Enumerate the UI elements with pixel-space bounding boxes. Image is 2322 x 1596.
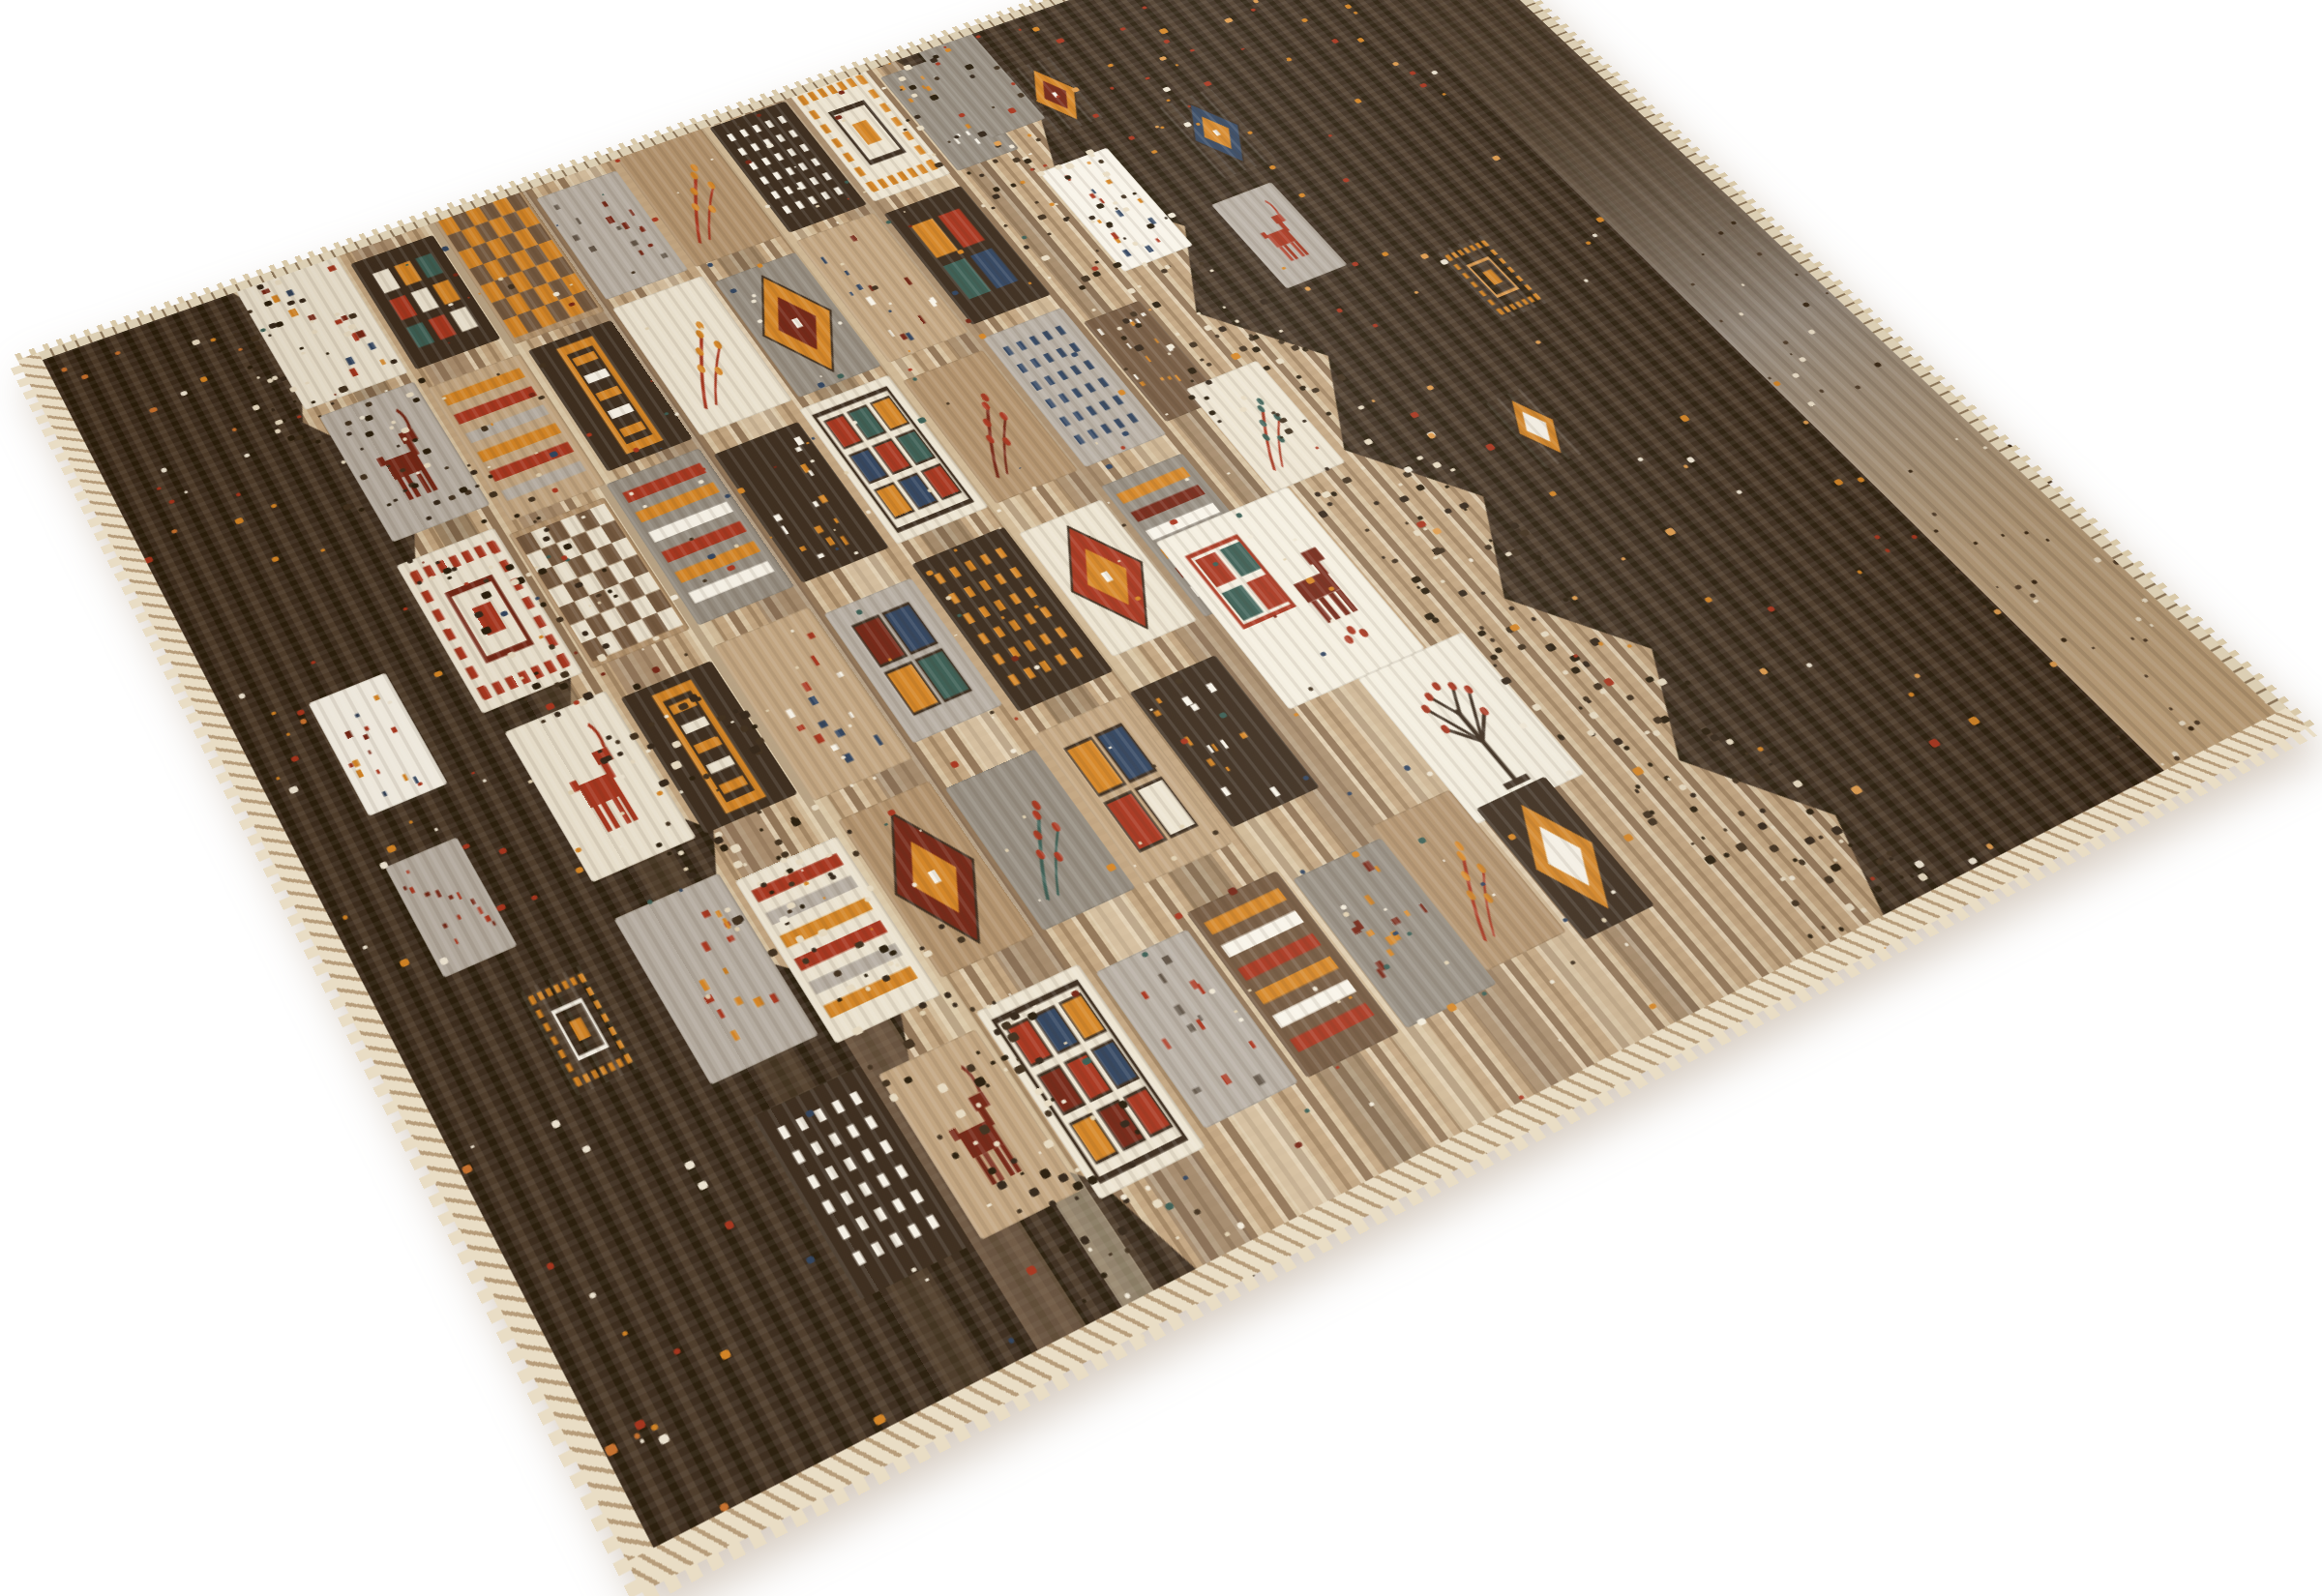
knot-speck bbox=[1759, 807, 1768, 813]
knot-speck bbox=[1409, 71, 1416, 75]
knot-speck bbox=[1359, 465, 1366, 470]
knot-speck bbox=[886, 809, 896, 816]
knot-speck bbox=[1685, 457, 1696, 463]
knot-speck bbox=[361, 945, 368, 951]
knot-speck bbox=[1206, 362, 1212, 367]
knot-speck bbox=[527, 392, 536, 399]
knot-speck bbox=[1268, 164, 1276, 169]
knot-speck bbox=[1205, 379, 1213, 385]
knot-speck bbox=[538, 568, 549, 576]
knot-speck bbox=[1954, 437, 1959, 440]
knot-speck bbox=[1008, 993, 1012, 997]
knot-speck bbox=[1048, 1199, 1057, 1208]
knot-speck bbox=[666, 851, 672, 857]
knot-speck bbox=[629, 732, 640, 741]
knot-speck bbox=[1247, 1271, 1256, 1279]
knot-speck bbox=[504, 563, 516, 572]
knot-speck bbox=[955, 1108, 967, 1119]
knot-speck bbox=[1196, 311, 1201, 315]
knot-speck bbox=[707, 552, 717, 560]
knot-speck bbox=[1189, 48, 1195, 52]
knot-speck bbox=[1981, 605, 1986, 608]
knot-speck bbox=[527, 780, 533, 784]
knot-speck bbox=[978, 173, 985, 177]
knot-speck bbox=[817, 382, 826, 389]
knot-speck bbox=[1032, 1005, 1039, 1011]
knot-speck bbox=[1392, 61, 1400, 66]
knot-speck bbox=[314, 439, 321, 444]
knot-speck bbox=[341, 459, 346, 464]
knot-speck bbox=[1802, 420, 1810, 426]
knot-speck bbox=[1231, 352, 1242, 360]
knot-speck bbox=[1767, 606, 1776, 612]
knot-speck bbox=[1095, 249, 1100, 251]
knot-speck bbox=[794, 934, 806, 944]
knot-speck bbox=[209, 338, 216, 342]
knot-speck bbox=[1016, 1057, 1022, 1062]
knot-speck bbox=[1112, 261, 1122, 268]
knot-speck bbox=[1953, 570, 1961, 576]
knot-speck bbox=[811, 437, 815, 440]
knot-speck bbox=[1278, 329, 1284, 333]
knot-speck bbox=[1996, 586, 1999, 588]
knot-speck bbox=[991, 106, 996, 109]
knot-speck bbox=[274, 280, 283, 285]
knot-speck bbox=[856, 72, 861, 74]
knot-speck bbox=[853, 940, 864, 949]
knot-speck bbox=[535, 597, 541, 602]
knot-speck bbox=[1095, 203, 1105, 210]
knot-speck bbox=[953, 547, 959, 551]
knot-speck bbox=[399, 958, 411, 968]
knot-speck bbox=[1372, 399, 1377, 402]
knot-speck bbox=[530, 895, 538, 901]
knot-speck bbox=[1622, 833, 1635, 842]
knot-speck bbox=[1588, 711, 1599, 720]
knot-speck bbox=[1009, 1157, 1018, 1165]
knot-speck bbox=[481, 626, 492, 635]
knot-speck bbox=[844, 180, 849, 184]
knot-speck bbox=[1725, 738, 1735, 745]
knot-speck bbox=[1479, 881, 1486, 886]
knot-speck bbox=[670, 594, 679, 602]
knot-speck bbox=[1159, 56, 1168, 61]
knot-speck bbox=[885, 103, 889, 105]
knot-speck bbox=[1183, 122, 1193, 128]
knot-speck bbox=[1284, 428, 1295, 435]
knot-speck bbox=[951, 1002, 959, 1009]
knot-speck bbox=[992, 1000, 997, 1005]
knot-speck bbox=[1034, 1056, 1045, 1065]
knot-speck bbox=[1910, 873, 1916, 878]
knot-speck bbox=[543, 527, 551, 533]
knot-speck bbox=[555, 224, 558, 226]
knot-speck bbox=[2192, 720, 2201, 726]
knot-speck bbox=[1123, 1292, 1131, 1300]
knot-speck bbox=[2014, 584, 2023, 590]
knot-speck bbox=[672, 1347, 681, 1355]
knot-speck bbox=[1820, 925, 1826, 930]
knot-speck bbox=[1790, 899, 1801, 906]
knot-speck bbox=[1768, 843, 1780, 853]
knot-speck bbox=[1180, 737, 1190, 744]
knot-speck bbox=[1584, 240, 1592, 245]
knot-speck bbox=[1507, 833, 1517, 841]
knot-speck bbox=[1872, 885, 1883, 893]
knot-speck bbox=[1392, 931, 1400, 936]
knot-speck bbox=[1425, 771, 1433, 777]
knot-speck bbox=[1032, 27, 1041, 33]
knot-speck bbox=[759, 882, 768, 889]
knot-speck bbox=[671, 354, 677, 358]
knot-speck bbox=[966, 171, 972, 175]
knot-speck bbox=[286, 300, 296, 307]
knot-speck bbox=[286, 434, 296, 441]
knot-speck bbox=[1240, 396, 1247, 400]
knot-speck bbox=[487, 474, 493, 479]
knot-speck bbox=[1731, 778, 1740, 784]
knot-speck bbox=[500, 610, 509, 617]
knot-speck bbox=[464, 582, 470, 586]
knot-speck bbox=[1175, 678, 1183, 685]
knot-speck bbox=[1702, 253, 1705, 255]
knot-speck bbox=[184, 490, 189, 494]
knot-speck bbox=[1165, 343, 1176, 350]
knot-speck bbox=[1112, 200, 1118, 204]
knot-speck bbox=[548, 643, 556, 650]
knot-speck bbox=[1688, 806, 1698, 813]
knot-speck bbox=[1301, 18, 1309, 23]
knot-speck bbox=[1578, 706, 1584, 710]
knot-speck bbox=[1003, 224, 1008, 228]
knot-speck bbox=[432, 499, 442, 506]
knot-speck bbox=[1144, 1247, 1149, 1253]
knot-speck bbox=[1224, 1230, 1231, 1236]
knot-speck bbox=[1117, 1100, 1129, 1109]
knot-speck bbox=[268, 828, 281, 839]
knot-speck bbox=[679, 790, 684, 794]
knot-speck bbox=[1932, 529, 1939, 534]
knot-speck bbox=[1167, 352, 1172, 355]
knot-speck bbox=[1689, 792, 1698, 799]
knot-speck bbox=[1393, 1195, 1401, 1201]
knot-speck bbox=[1195, 123, 1201, 127]
knot-speck bbox=[2222, 748, 2228, 753]
knot-speck bbox=[1094, 260, 1100, 264]
knot-speck bbox=[700, 327, 704, 331]
knot-speck bbox=[1063, 1041, 1068, 1045]
knot-speck bbox=[991, 193, 1000, 200]
knot-speck bbox=[490, 1268, 497, 1275]
knot-speck bbox=[934, 162, 944, 168]
knot-speck bbox=[1773, 231, 1780, 236]
knot-speck bbox=[275, 776, 281, 781]
knot-speck bbox=[1087, 161, 1092, 164]
knot-speck bbox=[1982, 446, 1987, 450]
knot-speck bbox=[1290, 344, 1300, 352]
knot-speck bbox=[480, 426, 490, 432]
knot-speck bbox=[1972, 541, 1979, 546]
knot-speck bbox=[597, 601, 603, 605]
knot-speck bbox=[632, 447, 640, 453]
knot-speck bbox=[238, 694, 246, 699]
knot-speck bbox=[396, 444, 401, 448]
knot-speck bbox=[883, 822, 887, 825]
knot-speck bbox=[1057, 1172, 1069, 1183]
knot-speck bbox=[588, 605, 591, 607]
knot-speck bbox=[1597, 641, 1604, 646]
knot-speck bbox=[334, 312, 340, 316]
knot-speck bbox=[1398, 483, 1404, 487]
knot-speck bbox=[914, 1424, 928, 1436]
knot-speck bbox=[1259, 298, 1269, 305]
knot-speck bbox=[881, 86, 887, 90]
knot-speck bbox=[2031, 579, 2039, 584]
knot-speck bbox=[978, 333, 987, 339]
knot-speck bbox=[1511, 566, 1517, 570]
knot-speck bbox=[569, 283, 572, 285]
knot-speck bbox=[1127, 135, 1136, 141]
knot-speck bbox=[1188, 340, 1199, 348]
knot-speck bbox=[1142, 262, 1148, 267]
knot-speck bbox=[1501, 676, 1513, 686]
knot-speck bbox=[1624, 694, 1635, 701]
knot-speck bbox=[663, 714, 669, 719]
knot-speck bbox=[985, 1004, 993, 1010]
knot-speck bbox=[1107, 501, 1110, 503]
knot-speck bbox=[1121, 318, 1131, 325]
knot-speck bbox=[299, 298, 307, 304]
knot-speck bbox=[945, 595, 952, 600]
knot-speck bbox=[1018, 29, 1022, 32]
knot-speck bbox=[1621, 557, 1625, 561]
knot-speck bbox=[295, 434, 304, 441]
knot-speck bbox=[701, 578, 707, 582]
knot-speck bbox=[439, 957, 450, 965]
knot-speck bbox=[1204, 324, 1213, 331]
knot-speck bbox=[825, 852, 833, 858]
knot-speck bbox=[992, 187, 1000, 192]
knot-speck bbox=[1339, 903, 1348, 911]
knot-speck bbox=[1664, 527, 1677, 536]
knot-speck bbox=[1086, 1175, 1098, 1186]
knot-speck bbox=[724, 1220, 735, 1229]
knot-speck bbox=[1330, 491, 1338, 497]
knot-speck bbox=[550, 1119, 560, 1129]
knot-speck bbox=[1704, 854, 1717, 865]
knot-speck bbox=[192, 339, 200, 345]
knot-speck bbox=[1652, 730, 1662, 737]
knot-speck bbox=[864, 897, 872, 903]
knot-speck bbox=[1468, 558, 1474, 563]
knot-speck bbox=[833, 528, 837, 531]
knot-speck bbox=[1944, 904, 1952, 911]
knot-speck bbox=[1120, 194, 1128, 199]
knot-speck bbox=[818, 928, 830, 937]
knot-speck bbox=[719, 1502, 729, 1513]
knot-speck bbox=[1302, 775, 1311, 782]
knot-speck bbox=[1419, 252, 1430, 259]
knot-speck bbox=[2159, 762, 2164, 766]
knot-speck bbox=[1602, 677, 1615, 687]
knot-speck bbox=[1768, 377, 1771, 380]
knot-speck bbox=[1026, 1265, 1038, 1277]
knot-speck bbox=[619, 845, 623, 848]
knot-speck bbox=[1364, 527, 1371, 532]
knot-speck bbox=[1325, 411, 1332, 416]
knot-speck bbox=[1690, 842, 1696, 846]
knot-speck bbox=[1100, 1272, 1109, 1280]
knot-speck bbox=[655, 842, 664, 848]
knot-speck bbox=[683, 653, 689, 657]
knot-speck bbox=[461, 1164, 473, 1175]
knot-speck bbox=[764, 204, 771, 208]
knot-speck bbox=[1516, 643, 1527, 651]
knot-speck bbox=[1034, 200, 1040, 204]
knot-speck bbox=[906, 119, 910, 122]
knot-speck bbox=[911, 377, 918, 382]
knot-speck bbox=[483, 779, 488, 783]
knot-speck bbox=[1885, 548, 1891, 553]
knot-speck bbox=[998, 527, 1002, 530]
knot-speck bbox=[1234, 319, 1240, 324]
knot-speck bbox=[1700, 726, 1712, 735]
knot-speck bbox=[873, 1413, 887, 1426]
knot-speck bbox=[1121, 430, 1131, 437]
knot-speck bbox=[736, 123, 741, 126]
knot-speck bbox=[1305, 576, 1316, 584]
knot-speck bbox=[926, 152, 931, 155]
knot-speck bbox=[926, 570, 935, 576]
knot-speck bbox=[379, 861, 390, 870]
knot-speck bbox=[469, 469, 479, 476]
knot-speck bbox=[1583, 279, 1589, 282]
knot-speck bbox=[836, 373, 845, 380]
knot-speck bbox=[1430, 70, 1439, 75]
knot-speck bbox=[978, 1124, 991, 1135]
knot-speck bbox=[676, 192, 679, 193]
knot-speck bbox=[1415, 456, 1424, 461]
knot-speck bbox=[1216, 420, 1222, 424]
knot-speck bbox=[1319, 651, 1326, 657]
knot-speck bbox=[714, 733, 719, 737]
knot-speck bbox=[292, 399, 297, 402]
knot-speck bbox=[1208, 410, 1217, 416]
knot-speck bbox=[1372, 323, 1379, 328]
knot-speck bbox=[1390, 558, 1399, 565]
knot-speck bbox=[1356, 38, 1365, 44]
knot-speck bbox=[1186, 367, 1198, 374]
knot-speck bbox=[1004, 847, 1010, 852]
knot-speck bbox=[1036, 170, 1046, 177]
knot-speck bbox=[1442, 859, 1445, 862]
knot-speck bbox=[904, 211, 907, 213]
knot-speck bbox=[757, 263, 764, 268]
knot-speck bbox=[668, 1571, 674, 1578]
knot-speck bbox=[957, 250, 965, 255]
knot-speck bbox=[1914, 860, 1925, 869]
knot-speck bbox=[435, 561, 440, 565]
knot-speck bbox=[255, 284, 264, 290]
knot-speck bbox=[168, 499, 175, 505]
knot-speck bbox=[1357, 405, 1365, 411]
knot-speck bbox=[986, 1202, 992, 1207]
knot-speck bbox=[724, 493, 730, 498]
knot-speck bbox=[2029, 593, 2038, 599]
knot-speck bbox=[1804, 663, 1812, 668]
knot-speck bbox=[646, 900, 653, 905]
knot-speck bbox=[246, 310, 253, 314]
knot-speck bbox=[993, 1028, 1001, 1036]
knot-speck bbox=[1303, 1108, 1311, 1114]
knot-speck bbox=[994, 1140, 1001, 1147]
knot-speck bbox=[999, 1020, 1012, 1031]
knot-speck bbox=[1807, 329, 1816, 335]
knot-speck bbox=[1823, 874, 1835, 884]
knot-speck bbox=[1285, 57, 1293, 62]
knot-speck bbox=[1058, 1244, 1070, 1255]
knot-speck bbox=[2047, 497, 2051, 499]
knot-speck bbox=[495, 372, 500, 376]
knot-speck bbox=[2141, 598, 2148, 603]
knot-speck bbox=[1843, 903, 1856, 913]
knot-speck bbox=[743, 863, 749, 868]
knot-speck bbox=[402, 606, 408, 610]
knot-speck bbox=[1612, 737, 1623, 746]
knot-speck bbox=[1539, 631, 1550, 638]
knot-speck bbox=[903, 64, 913, 71]
knot-speck bbox=[1070, 990, 1081, 998]
knot-speck bbox=[1489, 653, 1500, 661]
knot-speck bbox=[898, 76, 907, 82]
knot-speck bbox=[1562, 917, 1568, 922]
knot-speck bbox=[2112, 559, 2122, 566]
knot-speck bbox=[1116, 1226, 1129, 1236]
knot-speck bbox=[1571, 596, 1578, 601]
knot-speck bbox=[1420, 587, 1431, 595]
knot-speck bbox=[386, 464, 391, 468]
knot-speck bbox=[1081, 1056, 1092, 1066]
knot-speck bbox=[1718, 319, 1723, 322]
knot-speck bbox=[1444, 508, 1452, 514]
knot-speck bbox=[1013, 1064, 1027, 1075]
knot-speck bbox=[524, 572, 531, 577]
knot-speck bbox=[481, 591, 492, 600]
knot-speck bbox=[1064, 175, 1071, 180]
knot-speck bbox=[527, 496, 535, 502]
knot-speck bbox=[1417, 837, 1428, 844]
knot-speck bbox=[1753, 774, 1762, 781]
knot-speck bbox=[1628, 633, 1634, 636]
knot-speck bbox=[862, 191, 866, 193]
knot-speck bbox=[574, 581, 583, 589]
knot-speck bbox=[1344, 4, 1353, 9]
knot-speck bbox=[1847, 842, 1854, 848]
knot-speck bbox=[580, 515, 586, 518]
knot-speck bbox=[989, 1059, 997, 1065]
knot-speck bbox=[1169, 518, 1179, 526]
knot-speck bbox=[895, 963, 901, 968]
knot-speck bbox=[588, 1291, 596, 1299]
knot-speck bbox=[2129, 636, 2135, 641]
knot-speck bbox=[870, 928, 874, 931]
knot-speck bbox=[956, 935, 967, 944]
knot-speck bbox=[1042, 1138, 1055, 1149]
knot-speck bbox=[727, 724, 732, 729]
knot-speck bbox=[1040, 254, 1051, 261]
knot-speck bbox=[1807, 933, 1814, 938]
knot-speck bbox=[1159, 28, 1170, 35]
